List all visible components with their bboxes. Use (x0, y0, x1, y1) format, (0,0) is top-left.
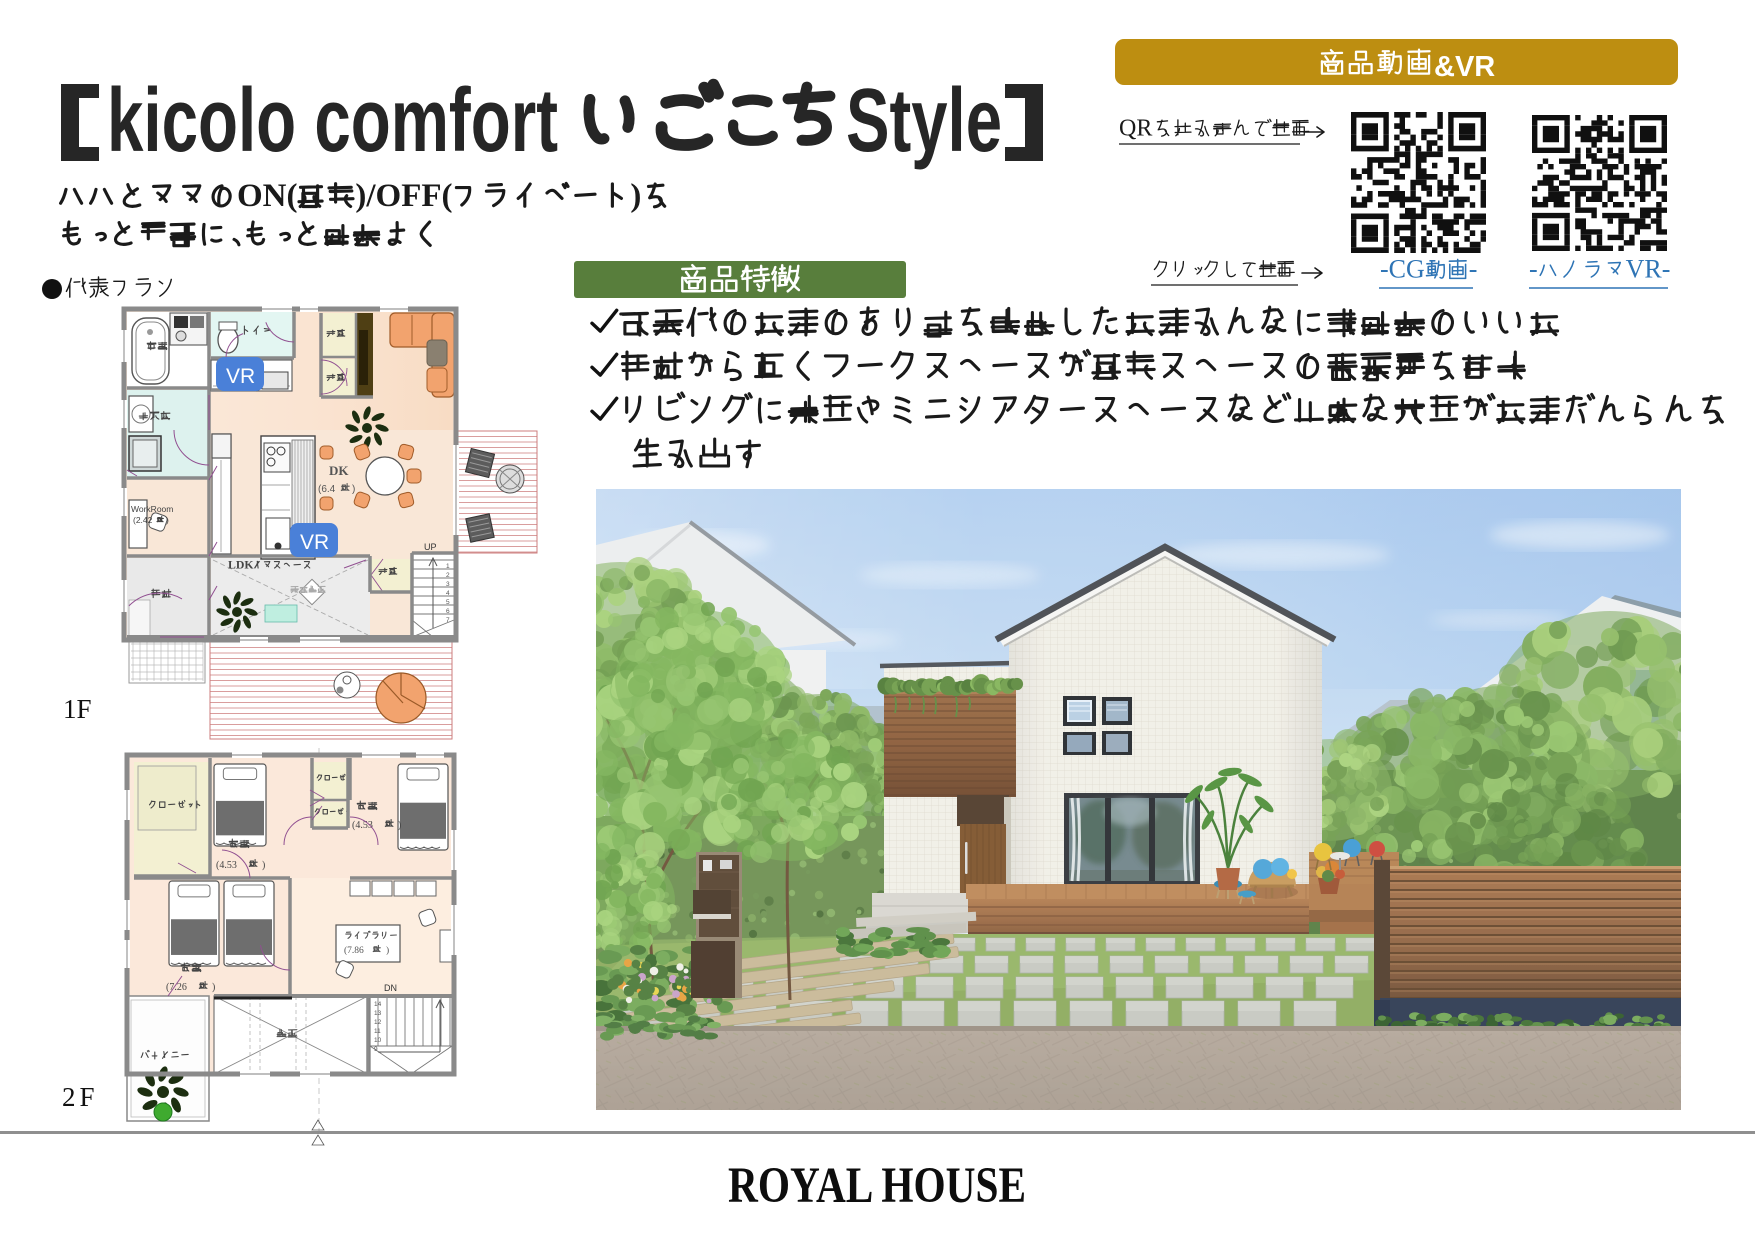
svg-text:1F: 1F (63, 694, 92, 724)
svg-text:-: - (1529, 255, 1538, 284)
svg-text:VR-: VR- (1626, 255, 1671, 284)
svg-text:Style: Style (846, 71, 1002, 171)
svg-text:(6.4: (6.4 (318, 484, 336, 495)
svg-text:(2.42: (2.42 (133, 515, 153, 525)
svg-text:UP: UP (424, 542, 437, 552)
svg-text:LDK: LDK (228, 557, 254, 571)
svg-text:ON(: ON( (237, 178, 298, 214)
svg-text:DK: DK (329, 463, 349, 478)
svg-text:WorkRoom: WorkRoom (131, 504, 173, 514)
svg-text:): ) (630, 178, 641, 214)
svg-text:VR: VR (300, 531, 329, 554)
svg-text:-: - (1469, 255, 1478, 284)
svg-text:2F: 2F (62, 1082, 99, 1112)
svg-text:)/OFF(: )/OFF( (355, 178, 452, 214)
svg-text:12: 12 (374, 1019, 382, 1026)
svg-text:): ) (398, 820, 401, 831)
svg-text:): ) (262, 860, 265, 871)
svg-text:(4.53: (4.53 (216, 860, 237, 871)
svg-text:ROYAL HOUSE: ROYAL HOUSE (728, 1158, 1026, 1214)
svg-text:kicolo comfort: kicolo comfort (107, 71, 558, 171)
svg-text:11: 11 (374, 1028, 381, 1035)
svg-text:VR: VR (226, 365, 255, 388)
svg-text:): ) (352, 484, 355, 495)
svg-text:-CG: -CG (1380, 255, 1425, 284)
svg-text:13: 13 (374, 1010, 382, 1017)
svg-text:): ) (166, 515, 169, 525)
svg-text:&VR: &VR (1434, 51, 1495, 83)
svg-text:): ) (386, 945, 389, 956)
svg-text:): ) (212, 982, 215, 993)
svg-text:DN: DN (384, 983, 397, 993)
svg-text:10: 10 (374, 1037, 382, 1044)
svg-text:14: 14 (374, 1001, 382, 1008)
svg-text:QR: QR (1119, 116, 1152, 142)
svg-text:(7.86: (7.86 (344, 945, 364, 956)
